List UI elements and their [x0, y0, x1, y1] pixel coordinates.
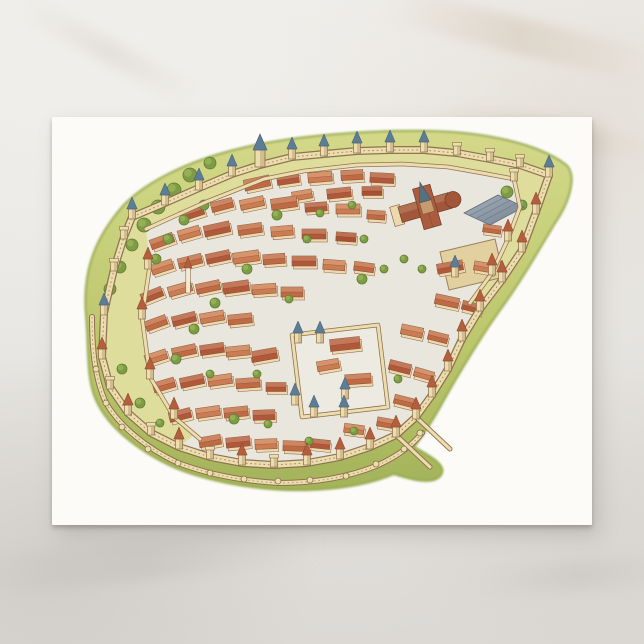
- outer-turret: [417, 430, 423, 436]
- house: [228, 313, 255, 329]
- tree: [264, 420, 272, 428]
- wall-tower: [486, 149, 495, 162]
- tree: [305, 437, 313, 445]
- wall-tower: [110, 259, 119, 272]
- tree: [501, 186, 513, 198]
- wall-tower: [147, 423, 156, 436]
- tree: [285, 295, 293, 303]
- wall-tower: [206, 447, 215, 460]
- tree: [303, 235, 311, 243]
- house: [266, 383, 288, 395]
- outer-turret: [93, 366, 99, 372]
- outer-turret: [119, 424, 125, 430]
- wall-tower: [270, 455, 279, 468]
- tree: [357, 274, 367, 284]
- tree: [360, 235, 368, 243]
- tree: [206, 370, 214, 378]
- outer-turret: [207, 470, 213, 476]
- outer-turret: [275, 478, 281, 484]
- tree: [418, 265, 426, 273]
- tree: [179, 215, 189, 225]
- wall-tower: [510, 169, 519, 182]
- house: [226, 436, 253, 452]
- house: [236, 377, 262, 392]
- tree: [272, 210, 282, 220]
- tree: [348, 201, 356, 209]
- wall-tower: [453, 143, 462, 156]
- tree: [229, 414, 239, 424]
- house: [322, 259, 346, 274]
- outer-turret: [343, 473, 349, 479]
- marble-surface: E.: [0, 0, 644, 644]
- tree: [163, 234, 173, 244]
- outer-turret: [373, 461, 379, 467]
- tree: [117, 364, 127, 374]
- tree: [210, 298, 220, 308]
- tree: [156, 419, 164, 427]
- tree: [394, 375, 402, 383]
- tree: [253, 370, 261, 378]
- house: [292, 256, 318, 269]
- house: [482, 224, 503, 238]
- postcard: E.: [52, 117, 592, 525]
- house: [255, 439, 279, 453]
- marble-vein: [469, 552, 644, 597]
- tree: [400, 255, 408, 263]
- outer-turret: [175, 460, 181, 466]
- outer-turret: [145, 446, 151, 452]
- tree: [350, 427, 358, 435]
- house: [366, 210, 386, 223]
- house: [341, 169, 365, 183]
- tree: [189, 324, 199, 334]
- tree: [135, 398, 145, 408]
- tree: [380, 265, 388, 273]
- house: [327, 187, 354, 203]
- tree: [126, 239, 138, 251]
- tree: [171, 354, 181, 364]
- artist-signature: E.: [365, 446, 369, 452]
- outer-turret: [103, 400, 109, 406]
- house: [370, 172, 396, 186]
- outer-turret: [401, 446, 407, 452]
- wall-tower: [106, 377, 115, 390]
- wall-tower: [516, 155, 525, 168]
- tree: [242, 264, 252, 274]
- marble-vein: [0, 521, 321, 598]
- outer-turret: [241, 476, 247, 482]
- tall-watch-tower: [253, 134, 267, 167]
- house: [308, 171, 335, 186]
- marble-vein: [16, 0, 204, 110]
- tree: [316, 209, 324, 217]
- house: [362, 187, 384, 199]
- castle: [292, 325, 388, 417]
- wall-tower: [120, 227, 129, 240]
- house: [336, 232, 358, 245]
- house: [271, 225, 296, 240]
- marble-vein: [380, 0, 644, 87]
- tree: [204, 157, 216, 169]
- house: [329, 336, 362, 354]
- house: [226, 345, 253, 361]
- medieval-walled-city-aerial-illustration: E.: [52, 117, 592, 525]
- house: [252, 283, 278, 298]
- house: [263, 253, 287, 268]
- outer-turret: [307, 477, 313, 483]
